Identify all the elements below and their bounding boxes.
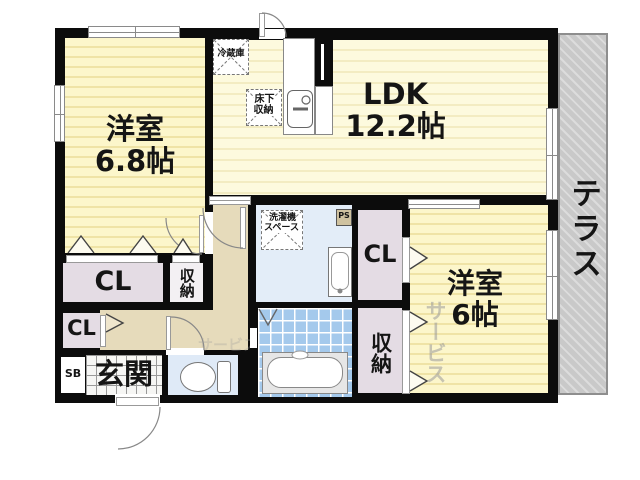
underfloor-storage-label: 床下 収納: [246, 94, 282, 116]
storage-bedroom2-door-band: [402, 310, 410, 394]
bedroom1-label: 洋室 6.8帖: [65, 114, 205, 178]
watermark-text: サービス: [420, 300, 450, 396]
ldk-corridor-sliding-door: [209, 196, 251, 205]
bedroom1-door-leaf: [199, 215, 204, 253]
ldk-terrace-window: [546, 108, 558, 200]
bedroom1-left-window: [54, 85, 65, 142]
shoe-box-label: SB: [61, 368, 85, 380]
entrance-label: 玄関: [86, 359, 162, 391]
toilet-tank: [217, 361, 231, 393]
pipe-space-label: PS: [336, 212, 352, 221]
closet-hall-label: CL: [63, 317, 100, 340]
entrance-door-swing: [118, 407, 160, 449]
washer-space-label: 洗濯機 スペース: [259, 214, 305, 234]
storage-bedroom1-door-band: [172, 255, 200, 263]
bedroom2-terrace-window: [546, 230, 558, 320]
closet-hall-door-band: [100, 315, 106, 347]
washroom-door-leaf: [240, 207, 246, 249]
floor-plan: テラス: [0, 0, 640, 480]
bathroom-door-opening: [250, 328, 257, 348]
storage-bedroom2-label: 収納: [358, 322, 402, 384]
washbasin-bowl: [331, 252, 349, 290]
terrace-label: テラス: [558, 164, 608, 294]
kitchen-sink: [287, 90, 313, 128]
watermark-text-2: サービス: [198, 334, 250, 355]
toilet-bowl: [180, 362, 216, 392]
bedroom1-door-opening: [205, 212, 213, 254]
storage-bedroom1-label: 収納: [170, 264, 203, 302]
bathtub: [267, 357, 343, 388]
closet-bedroom2-label: CL: [358, 241, 402, 267]
kitchen-door-leaf: [259, 13, 265, 37]
refrigerator-label: 冷蔵庫: [213, 50, 249, 60]
bedroom1-top-window: [88, 26, 180, 38]
toilet-door-leaf: [166, 316, 171, 350]
closet-bedroom1-door-band: [66, 255, 158, 263]
bedroom2-top-window: [408, 199, 480, 209]
closet-bedroom2-door-band: [402, 237, 410, 283]
ldk-label: LDK 12.2帖: [318, 79, 473, 143]
entrance-door-leaf: [116, 397, 159, 406]
kitchen-wall-stub-slit: [321, 44, 324, 80]
closet-bedroom1-label: CL: [63, 267, 163, 297]
